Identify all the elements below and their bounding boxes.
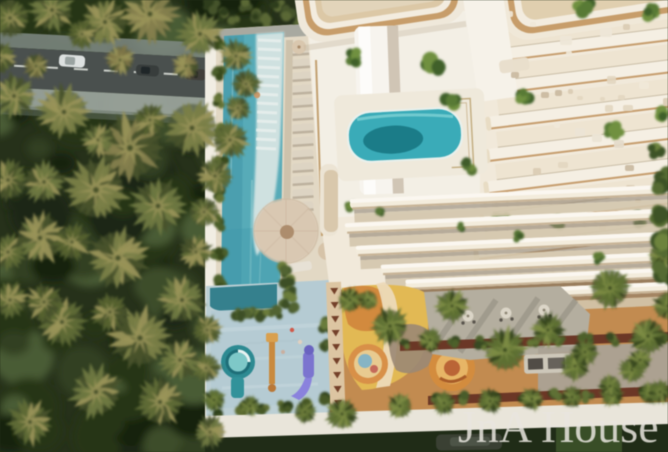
svg-text:JnA House: JnA House [458, 401, 659, 452]
